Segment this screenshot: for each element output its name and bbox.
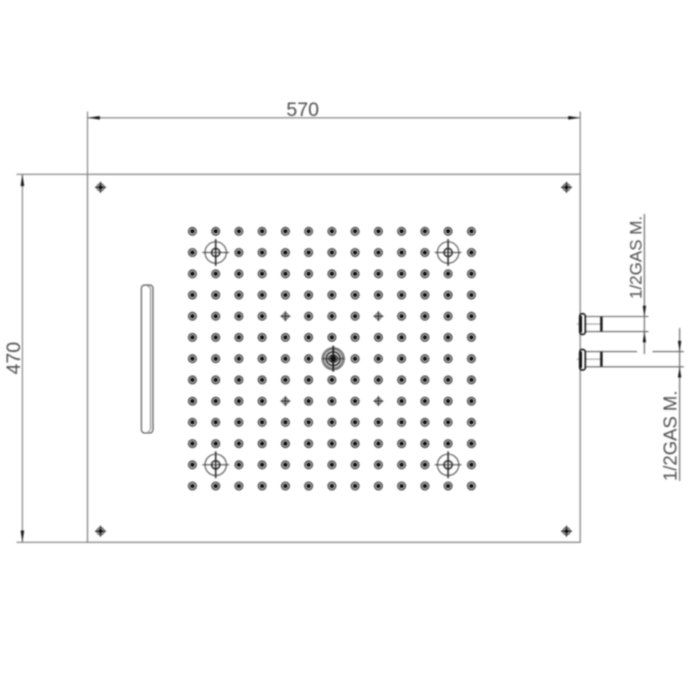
svg-text:1/2GAS M.: 1/2GAS M. (660, 391, 681, 481)
svg-text:570: 570 (286, 99, 319, 121)
svg-text:1/2GAS M.: 1/2GAS M. (627, 216, 646, 299)
svg-text:470: 470 (3, 342, 25, 375)
